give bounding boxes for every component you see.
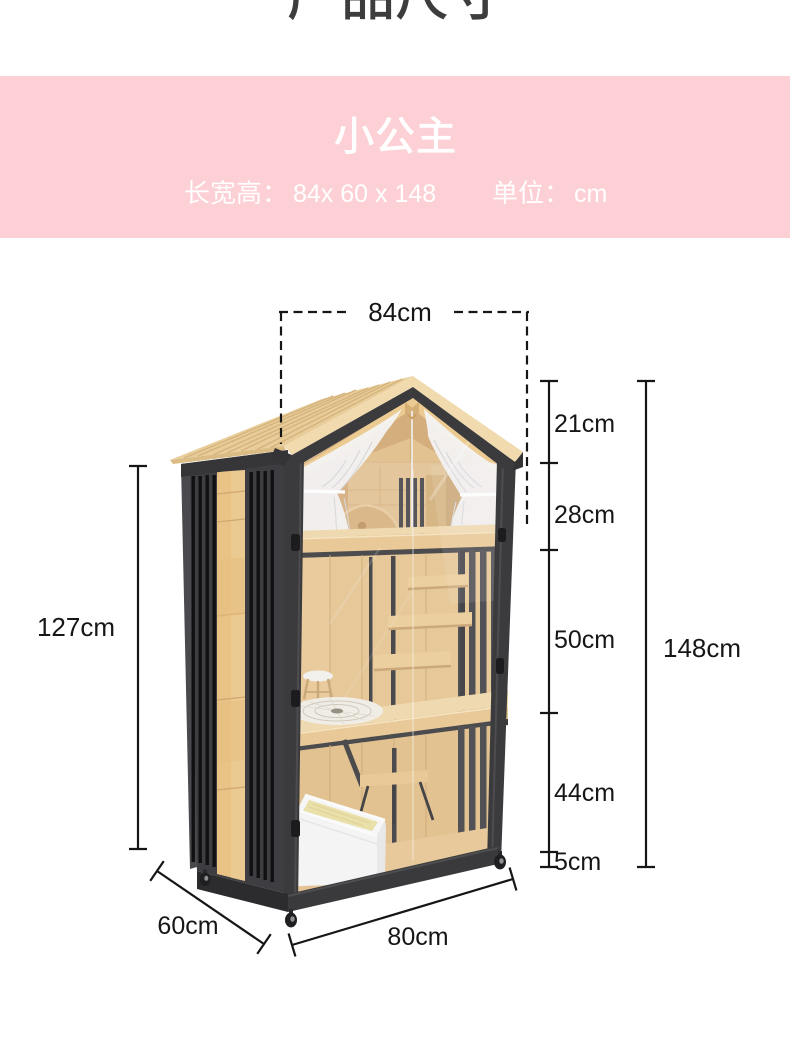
svg-text:cm: cm xyxy=(574,180,607,208)
svg-text:84cm: 84cm xyxy=(368,297,432,327)
svg-text:28cm: 28cm xyxy=(554,501,615,529)
svg-text:60cm: 60cm xyxy=(157,912,218,940)
svg-text:148cm: 148cm xyxy=(663,633,741,663)
svg-text:21cm: 21cm xyxy=(554,410,615,438)
svg-text:5cm: 5cm xyxy=(554,848,601,876)
svg-text:50cm: 50cm xyxy=(554,626,615,654)
svg-text:80cm: 80cm xyxy=(387,923,448,951)
svg-text:127cm: 127cm xyxy=(37,612,115,642)
svg-text:84x 60 x 148: 84x 60 x 148 xyxy=(293,180,436,208)
svg-text:44cm: 44cm xyxy=(554,779,615,807)
